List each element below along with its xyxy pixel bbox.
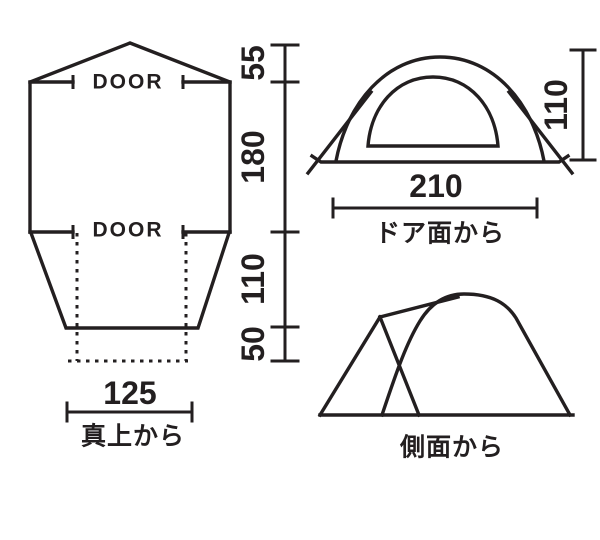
front-door-arch (368, 77, 498, 146)
top-view-porch-dashed (68, 233, 188, 361)
front-view-outline (308, 57, 572, 173)
side-ridge-line (380, 297, 458, 317)
bottom-door-label: DOOR (93, 220, 164, 241)
dim-porch-width-125: 125 (103, 377, 156, 409)
top-view-right-dimension (272, 45, 298, 361)
top-view-door-lines (30, 77, 230, 238)
dim-porch-depth-50: 50 (237, 326, 269, 362)
front-view-dimensions (333, 50, 595, 217)
side-view-outline (320, 294, 573, 415)
side-vestibule-front-slope (320, 317, 380, 415)
dim-peak-depth-55: 55 (237, 45, 269, 81)
diagram-linework (0, 0, 600, 540)
dim-body-depth-180: 180 (237, 130, 269, 183)
top-view-caption: 真上から (81, 425, 185, 450)
top-view-taper-and-floor-edge (31, 233, 229, 328)
dim-taper-depth-110: 110 (237, 253, 269, 305)
front-ground-line (312, 156, 568, 162)
porch-dashed-outline (68, 233, 188, 361)
side-view-caption: 側面から (400, 436, 504, 461)
top-door-label: DOOR (93, 72, 164, 93)
tent-dimension-diagram: DOOR DOOR 55 180 110 50 125 真上から 210 110… (0, 0, 600, 540)
dim-front-width-210: 210 (409, 170, 462, 202)
dim-front-height-110: 110 (540, 79, 572, 131)
front-view-caption: ドア面から (375, 222, 505, 247)
